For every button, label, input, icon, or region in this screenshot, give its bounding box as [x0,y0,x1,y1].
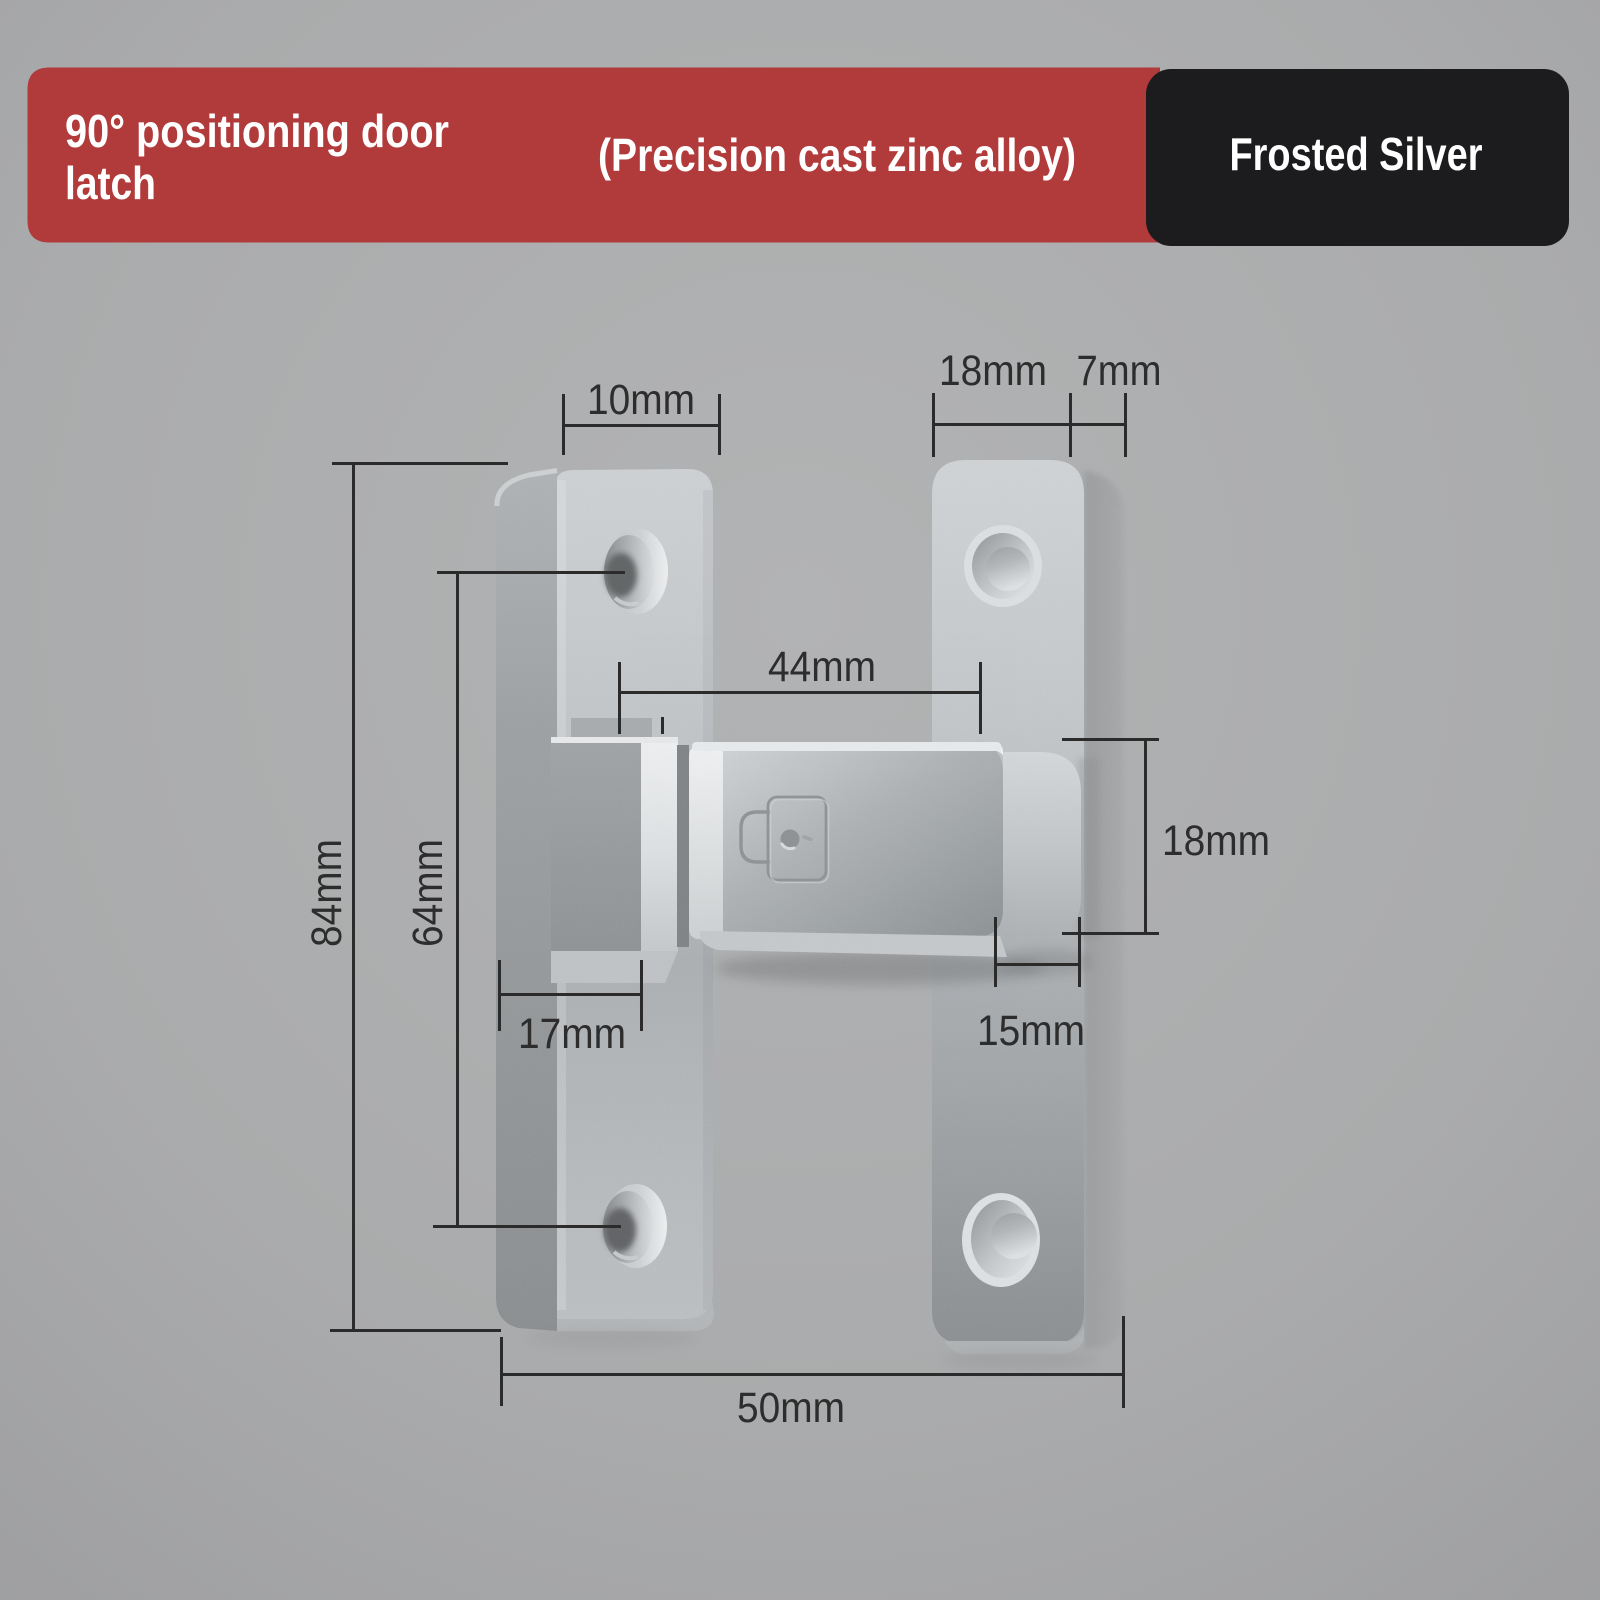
svg-text:Frosted Silver: Frosted Silver [1230,128,1483,180]
svg-text:18mm: 18mm [939,347,1047,395]
svg-text:18mm: 18mm [1162,817,1270,865]
svg-text:17mm: 17mm [518,1010,626,1058]
svg-text:84mm: 84mm [303,839,351,947]
svg-text:44mm: 44mm [768,643,876,691]
svg-text:latch: latch [65,157,156,209]
svg-text:15mm: 15mm [977,1007,1085,1055]
svg-text:10mm: 10mm [587,376,695,424]
svg-text:7mm: 7mm [1077,347,1162,395]
svg-text:(Precision cast zinc alloy): (Precision cast zinc alloy) [598,129,1076,181]
svg-text:50mm: 50mm [737,1384,845,1432]
svg-text:64mm: 64mm [404,839,452,947]
svg-text:90° positioning door: 90° positioning door [65,105,449,157]
